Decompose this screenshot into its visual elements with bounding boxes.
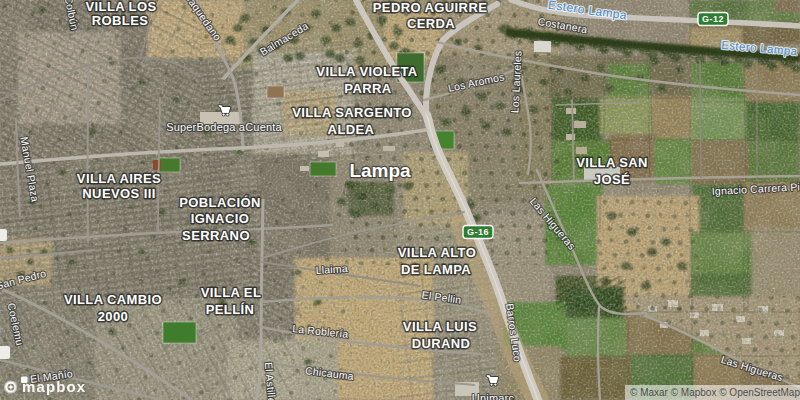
svg-text:SuperBodega aCuenta: SuperBodega aCuenta	[166, 121, 282, 133]
svg-text:DE LAMPA: DE LAMPA	[401, 262, 471, 277]
svg-text:VILLA CAMBIO: VILLA CAMBIO	[64, 292, 162, 307]
svg-text:PEDRO AGUIRRE: PEDRO AGUIRRE	[373, 0, 488, 15]
svg-text:DURAND: DURAND	[412, 336, 471, 351]
svg-text:© Maxar © Mapbox © OpenStreetM: © Maxar © Mapbox © OpenStreetMap	[630, 387, 800, 398]
svg-text:JOSÉ: JOSÉ	[594, 172, 630, 187]
svg-text:PARRA: PARRA	[344, 81, 391, 96]
svg-text:Unimarc: Unimarc	[472, 392, 515, 400]
svg-text:CERDA: CERDA	[407, 16, 455, 31]
svg-text:NUEVOS III: NUEVOS III	[82, 186, 155, 201]
svg-text:VILLA LUIS: VILLA LUIS	[403, 319, 477, 334]
svg-text:Llaima: Llaima	[315, 262, 348, 276]
svg-text:SERRANO: SERRANO	[182, 228, 250, 243]
svg-text:mapbox: mapbox	[22, 378, 86, 395]
svg-text:VILLA ALTO: VILLA ALTO	[398, 245, 476, 260]
svg-text:VILLA SAN: VILLA SAN	[576, 155, 648, 170]
svg-text:2000: 2000	[98, 309, 129, 324]
svg-text:Lampa: Lampa	[349, 160, 411, 181]
svg-text:G-12: G-12	[702, 14, 724, 24]
svg-text:VILLA SARGENTO: VILLA SARGENTO	[292, 105, 412, 120]
svg-text:ROBLES: ROBLES	[92, 13, 149, 28]
svg-text:PELLÍN: PELLÍN	[206, 302, 255, 317]
svg-text:VILLA VIOLETA: VILLA VIOLETA	[316, 64, 417, 79]
svg-text:VILLA LOS: VILLA LOS	[85, 0, 156, 14]
svg-text:ALDEA: ALDEA	[328, 122, 375, 137]
svg-text:VILLA EL: VILLA EL	[201, 285, 262, 300]
svg-text:VILLA AIRES: VILLA AIRES	[77, 171, 161, 186]
svg-text:IGNACIO: IGNACIO	[191, 211, 249, 226]
svg-text:POBLACIÓN: POBLACIÓN	[179, 195, 261, 210]
svg-text:G-16: G-16	[467, 227, 489, 237]
